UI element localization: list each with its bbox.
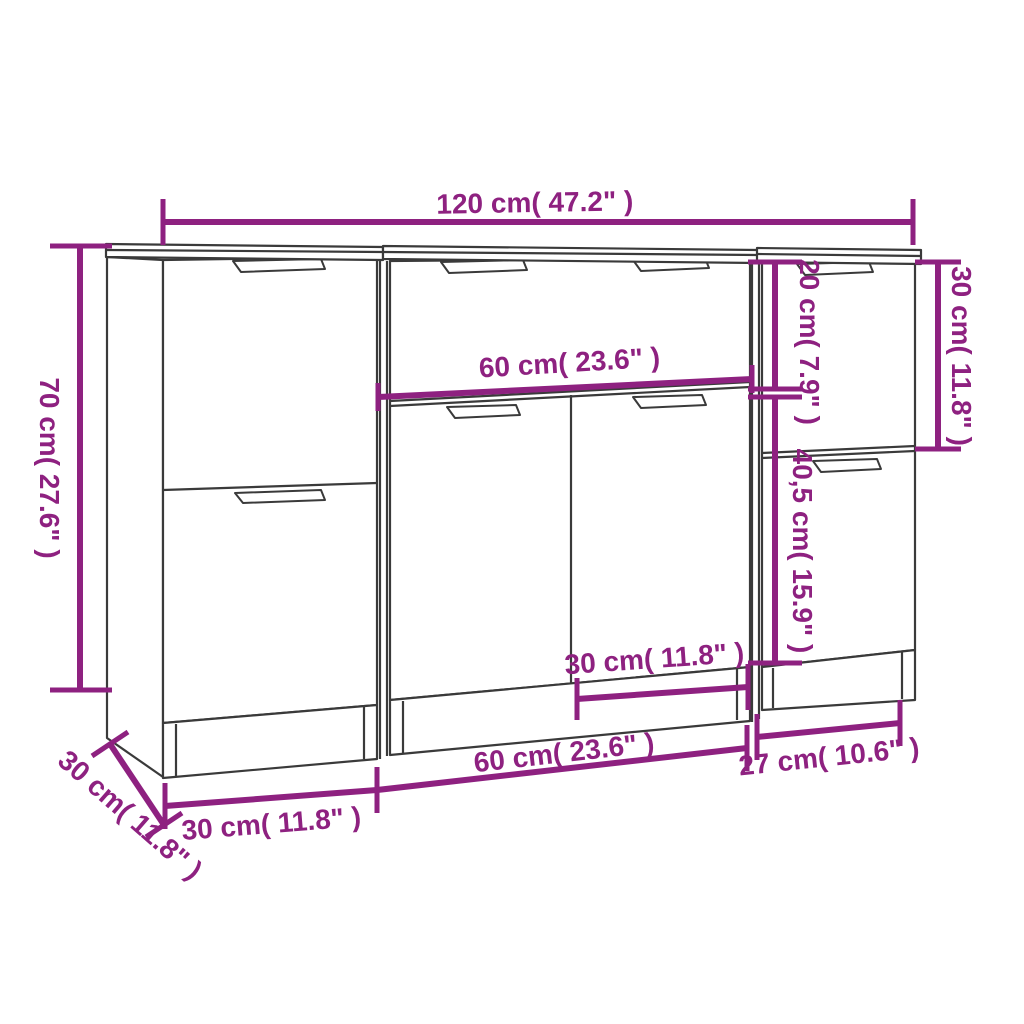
- middle-right-gap-lines: [752, 262, 759, 722]
- dim-overall-width-label: 120 cm( 47.2" ): [436, 185, 633, 219]
- left-upper-door-handle: [233, 259, 325, 272]
- dim-right-top-section-height: 30 cm( 11.8" ): [915, 262, 977, 449]
- dim-left-unit-width-label: 30 cm( 11.8" ): [180, 801, 362, 846]
- dim-overall-height: 70 cm( 27.6" ): [34, 246, 112, 690]
- middle-right-door-handle: [633, 395, 706, 408]
- product-dimension-image: 120 cm( 47.2" ) 70 cm( 27.6" ) 30 cm( 11…: [0, 0, 1024, 1024]
- dim-right-drawer-height-label: 20 cm( 7.9" ): [794, 259, 825, 425]
- right-unit: [757, 248, 921, 710]
- dim-right-top-section-height-label: 30 cm( 11.8" ): [946, 266, 977, 446]
- dimension-diagram: 120 cm( 47.2" ) 70 cm( 27.6" ) 30 cm( 11…: [0, 0, 1024, 1024]
- left-lower-door-handle: [235, 490, 325, 503]
- right-door-handle: [813, 459, 881, 472]
- dim-right-door-height-label: 40,5 cm( 15.9" ): [787, 449, 818, 654]
- left-unit: [106, 244, 383, 778]
- middle-drawer-handle-left: [441, 260, 527, 273]
- middle-left-door-handle: [447, 405, 520, 418]
- dim-left-unit-width: 30 cm( 11.8" ): [165, 767, 377, 846]
- dim-right-unit-width: 27 cm( 10.6" ): [737, 700, 921, 781]
- dim-overall-height-label: 70 cm( 27.6" ): [34, 377, 65, 558]
- left-side-panel: [107, 257, 163, 777]
- left-middle-gap-lines: [380, 260, 387, 759]
- dim-overall-width: 120 cm( 47.2" ): [163, 185, 913, 245]
